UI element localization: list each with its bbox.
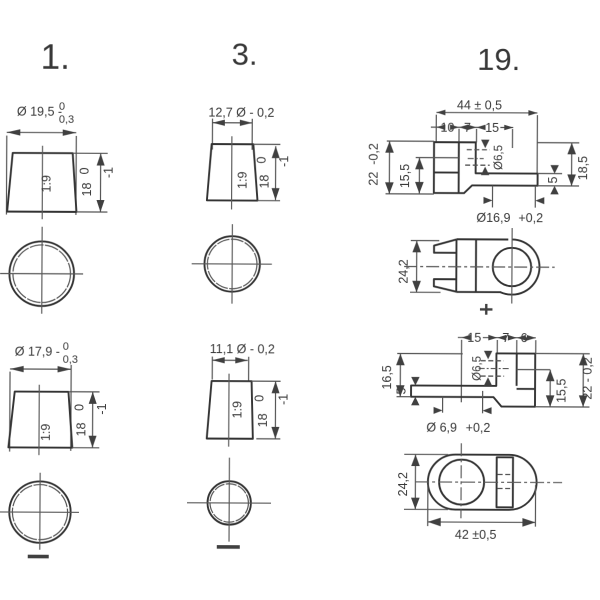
svg-text:0: 0 bbox=[72, 404, 86, 411]
svg-text:15,5: 15,5 bbox=[398, 164, 412, 188]
svg-text:-1: -1 bbox=[277, 156, 291, 167]
svg-text:-1: -1 bbox=[102, 167, 116, 178]
svg-text:18: 18 bbox=[256, 413, 270, 427]
svg-text:24,2: 24,2 bbox=[396, 472, 410, 496]
svg-text:18: 18 bbox=[74, 422, 88, 436]
svg-text:Ø6,5: Ø6,5 bbox=[472, 356, 484, 381]
svg-text:44 ± 0,5: 44 ± 0,5 bbox=[457, 98, 502, 112]
svg-text:1:9: 1:9 bbox=[236, 171, 250, 188]
svg-text:1:9: 1:9 bbox=[230, 401, 244, 418]
svg-text:0,3: 0,3 bbox=[59, 114, 74, 126]
svg-text:Ø16,9: Ø16,9 bbox=[476, 211, 510, 225]
svg-text:0: 0 bbox=[59, 101, 65, 113]
svg-text:18,5: 18,5 bbox=[576, 156, 590, 180]
svg-text:22 - 0,2: 22 - 0,2 bbox=[581, 357, 595, 400]
svg-text:15: 15 bbox=[485, 121, 499, 135]
svg-text:1.: 1. bbox=[41, 38, 70, 77]
svg-text:Ø6,5: Ø6,5 bbox=[493, 145, 505, 170]
svg-text:16,5: 16,5 bbox=[380, 365, 394, 389]
svg-text:5: 5 bbox=[546, 176, 560, 183]
svg-text:11,1 Ø - 0,2: 11,1 Ø - 0,2 bbox=[210, 342, 275, 356]
svg-text:18: 18 bbox=[80, 182, 94, 196]
svg-text:Ø 17,9 -: Ø 17,9 - bbox=[15, 345, 60, 359]
svg-text:1:9: 1:9 bbox=[40, 175, 54, 192]
svg-text:+0,2: +0,2 bbox=[518, 211, 543, 225]
svg-text:0: 0 bbox=[255, 157, 269, 164]
svg-text:Ø 19,5 -: Ø 19,5 - bbox=[17, 105, 62, 119]
svg-text:+0,2: +0,2 bbox=[466, 421, 491, 435]
svg-text:19.: 19. bbox=[477, 42, 520, 77]
svg-text:0: 0 bbox=[253, 395, 267, 402]
svg-text:-1: -1 bbox=[95, 403, 109, 414]
svg-text:0,3: 0,3 bbox=[63, 354, 78, 366]
svg-text:24,2: 24,2 bbox=[397, 259, 411, 283]
svg-text:18: 18 bbox=[258, 174, 272, 188]
svg-text:15,5: 15,5 bbox=[555, 379, 569, 403]
svg-text:3.: 3. bbox=[232, 37, 258, 72]
svg-text:42 ±0,5: 42 ±0,5 bbox=[455, 528, 497, 542]
svg-text:Ø 6,9: Ø 6,9 bbox=[426, 421, 457, 435]
svg-text:1:9: 1:9 bbox=[39, 424, 53, 441]
svg-text:0: 0 bbox=[63, 341, 69, 353]
svg-text:22 -0,2: 22 -0,2 bbox=[367, 143, 381, 186]
svg-text:-1: -1 bbox=[276, 394, 290, 405]
svg-text:12,7 Ø - 0,2: 12,7 Ø - 0,2 bbox=[208, 106, 274, 120]
svg-text:0: 0 bbox=[78, 167, 92, 174]
